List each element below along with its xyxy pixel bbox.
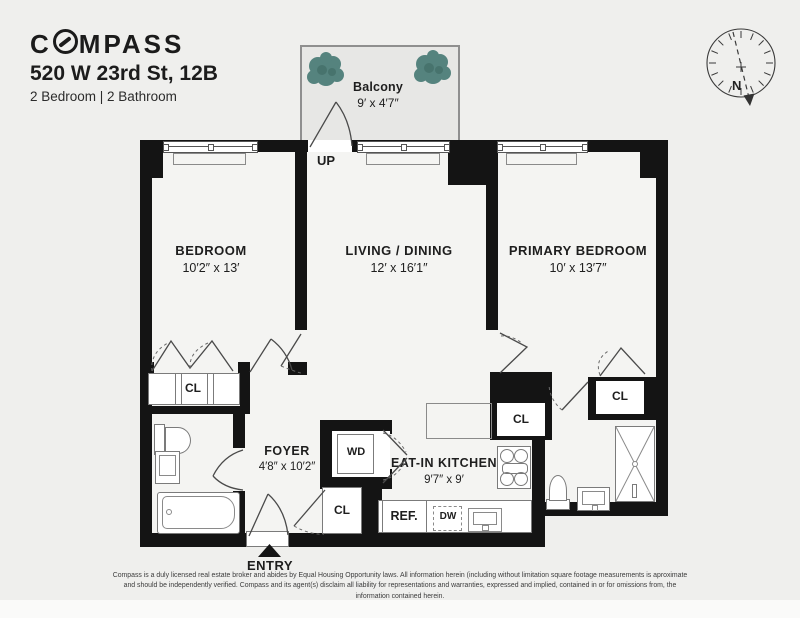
north-label: N	[732, 78, 741, 93]
primary-sink-basin	[582, 491, 605, 505]
dishwasher-label: DW	[440, 511, 457, 522]
balcony-door-opening	[308, 140, 352, 152]
bath-sink-basin	[159, 455, 176, 476]
wall-segment	[295, 152, 307, 330]
floorplan-page: CMPASS 520 W 23rd St, 12B 2 Bedroom | 2 …	[0, 0, 800, 618]
primary-bedroom-name: PRIMARY BEDROOM	[509, 243, 647, 258]
wall-segment	[532, 440, 545, 547]
wall-segment	[288, 362, 307, 375]
kitchen-name: EAT-IN KITCHEN	[391, 456, 497, 470]
primary-bedroom-dims: 10′ x 13′7″	[549, 261, 606, 275]
wall-segment	[656, 140, 668, 516]
radiator	[506, 153, 577, 165]
kitchen-sink-basin	[473, 512, 497, 525]
compass-rose-icon: N	[702, 22, 780, 108]
foyer-dims: 4′8″ x 10′2″	[259, 461, 316, 473]
bed-bath-subtitle: 2 Bedroom | 2 Bathroom	[30, 89, 177, 104]
radiator	[173, 153, 246, 165]
wall-segment	[140, 533, 246, 547]
living-dining-name: LIVING / DINING	[345, 243, 452, 258]
entry-threshold	[246, 531, 289, 547]
foyer-name: FOYER	[264, 444, 310, 458]
window	[357, 141, 450, 153]
stove-control-icon	[502, 463, 528, 474]
wall-segment	[448, 152, 498, 185]
balcony-name: Balcony	[353, 80, 403, 94]
compass-logo: CMPASS	[30, 28, 184, 60]
wall-segment	[640, 152, 656, 178]
kitchen-closet-label: CL	[513, 412, 529, 426]
closet-divider	[175, 374, 182, 404]
balcony-dims: 9′ x 4′7″	[357, 96, 398, 110]
needle-arrowhead-icon	[744, 94, 755, 107]
bathtub-basin	[162, 496, 235, 529]
kitchen-sink-tap	[482, 525, 489, 531]
burner-icon	[514, 449, 528, 463]
compass-logo-o-icon	[53, 29, 78, 54]
kitchen-counter	[426, 403, 492, 439]
refrigerator-label: REF.	[390, 509, 417, 523]
burner-icon	[500, 472, 514, 486]
disclaimer-text: Compass is a duly licensed real estate b…	[111, 571, 689, 602]
toilet-icon	[165, 427, 191, 454]
bedroom-dims: 10′2″ x 13′	[182, 261, 239, 275]
window	[497, 141, 588, 153]
closet-divider	[207, 374, 214, 404]
wd-label: WD	[347, 446, 365, 458]
wall-segment	[233, 414, 245, 448]
tub-faucet-icon	[166, 509, 172, 515]
wall-segment	[152, 152, 163, 178]
wall-segment	[140, 140, 152, 547]
radiator	[366, 153, 440, 165]
primary-sink-tap	[592, 505, 598, 511]
bottom-strip	[0, 600, 800, 618]
primary-toilet-icon	[549, 475, 567, 501]
up-label: UP	[317, 153, 335, 168]
center-cross-icon	[736, 62, 746, 72]
wall-segment	[140, 406, 250, 414]
primary-closet-label: CL	[612, 389, 628, 403]
shower-handle-icon	[632, 484, 637, 498]
address-title: 520 W 23rd St, 12B	[30, 62, 218, 86]
living-dining-dims: 12′ x 16′1″	[370, 261, 427, 275]
burner-icon	[514, 472, 528, 486]
wall-segment	[289, 533, 545, 547]
burner-icon	[500, 449, 514, 463]
bedroom-closet-label: CL	[185, 381, 201, 395]
kitchen-dims: 9′7″ x 9′	[424, 474, 464, 486]
wall-segment	[486, 185, 498, 330]
foyer-closet-label: CL	[334, 503, 350, 517]
bedroom-name: BEDROOM	[175, 243, 246, 258]
stove-icon	[497, 446, 531, 489]
window	[163, 141, 258, 153]
